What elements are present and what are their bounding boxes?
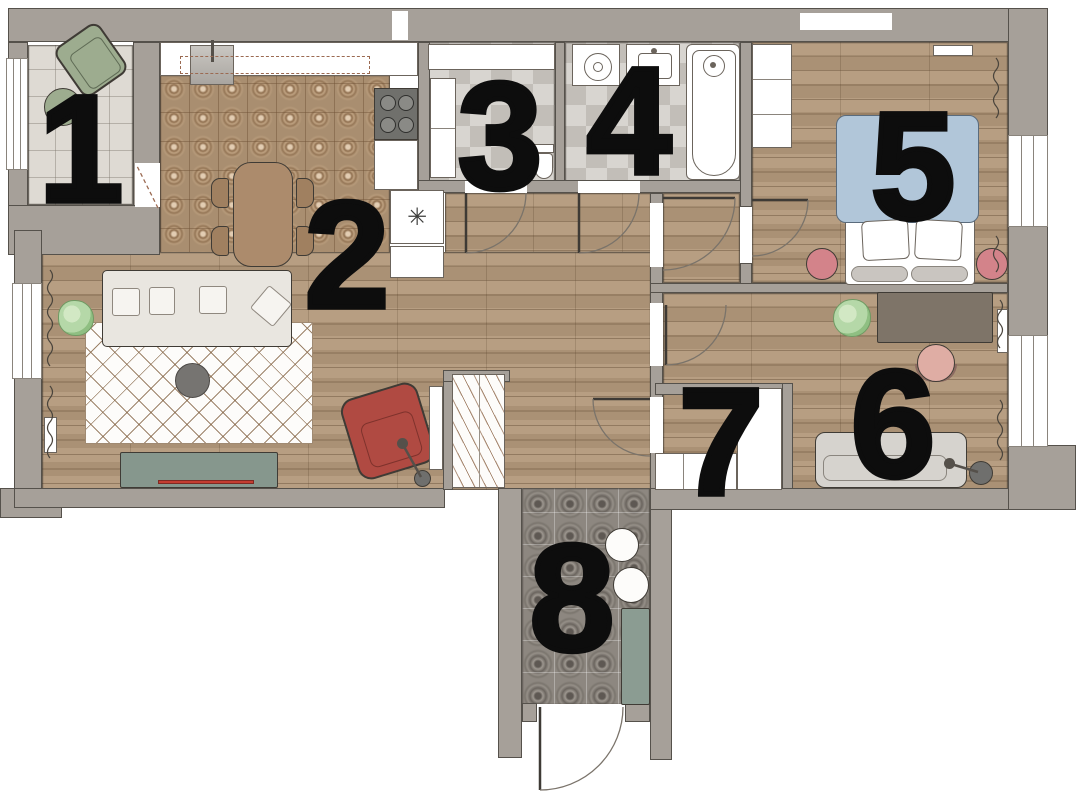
room-label-bedroom: 5	[871, 106, 952, 228]
curtain-living-2	[48, 386, 53, 458]
study-door-arc	[666, 305, 726, 365]
closet-door-arc	[593, 399, 650, 456]
entrance-door-arc	[540, 707, 623, 790]
curtain-bedroom-2	[994, 236, 999, 272]
balcony-door-dash	[137, 166, 158, 208]
floor-plan-canvas: ✳	[0, 0, 1076, 796]
room-label-kitchen-living: 2	[305, 195, 386, 317]
bedroom-door-arc	[752, 200, 808, 256]
room-label-entrance: 8	[530, 538, 611, 660]
room-label-balcony: 1	[39, 89, 120, 211]
room-label-bathroom: 4	[587, 61, 668, 183]
room-label-closet: 7	[679, 382, 760, 504]
floor-lamp-living-stem	[402, 443, 421, 477]
curtain-study-2	[998, 400, 1003, 460]
curtain-living-1	[48, 270, 53, 366]
room-label-toilet: 3	[458, 76, 539, 198]
corridor-door-arc	[663, 198, 735, 270]
curtain-bedroom-1	[994, 58, 999, 118]
curtain-study-1	[998, 300, 1003, 348]
room-label-study: 6	[851, 364, 932, 486]
floor-lamp-study-stem	[951, 464, 978, 472]
